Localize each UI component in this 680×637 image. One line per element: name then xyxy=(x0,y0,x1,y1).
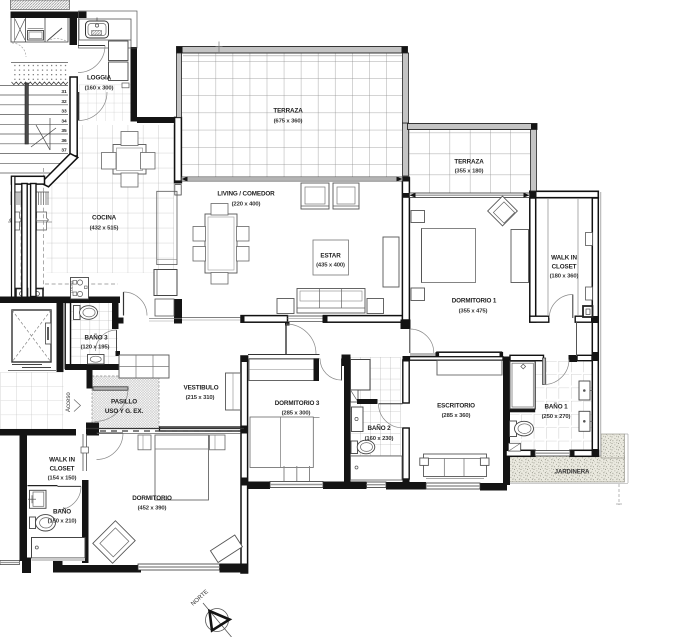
svg-text:DORMITORIO: DORMITORIO xyxy=(132,495,172,502)
svg-text:36: 36 xyxy=(61,138,67,144)
svg-text:(285 x 360): (285 x 360) xyxy=(442,413,471,419)
svg-text:PASILLO: PASILLO xyxy=(111,399,137,406)
svg-text:(435 x 400): (435 x 400) xyxy=(316,263,345,269)
svg-text:33: 33 xyxy=(61,109,67,115)
svg-text:WALK IN: WALK IN xyxy=(551,255,577,262)
svg-text:(675 x 360): (675 x 360) xyxy=(274,119,303,125)
svg-text:32: 32 xyxy=(61,99,67,105)
svg-text:(180 x 360): (180 x 360) xyxy=(550,274,579,280)
svg-text:DORMITORIO 3: DORMITORIO 3 xyxy=(275,400,320,407)
svg-text:CLOSET: CLOSET xyxy=(552,264,577,271)
svg-text:(160 x 300): (160 x 300) xyxy=(85,86,114,92)
svg-text:(452 x 390): (452 x 390) xyxy=(138,506,167,512)
svg-text:31: 31 xyxy=(61,89,67,95)
svg-text:35: 35 xyxy=(61,128,67,134)
svg-text:BAÑO 1: BAÑO 1 xyxy=(544,402,568,411)
svg-text:LIVING / COMEDOR: LIVING / COMEDOR xyxy=(217,191,275,198)
svg-text:(150 x 210): (150 x 210) xyxy=(48,519,77,525)
svg-text:37: 37 xyxy=(61,148,67,154)
svg-text:CLOSET: CLOSET xyxy=(50,466,75,473)
svg-text:(220 x 400): (220 x 400) xyxy=(232,202,261,208)
svg-text:TERRAZA: TERRAZA xyxy=(273,108,303,115)
svg-text:WALK IN: WALK IN xyxy=(49,457,75,464)
svg-text:(120 x 195): (120 x 195) xyxy=(81,345,110,351)
svg-text:JARDINERA: JARDINERA xyxy=(555,469,590,476)
svg-text:TERRAZA: TERRAZA xyxy=(454,159,484,166)
svg-text:(432 x 515): (432 x 515) xyxy=(90,226,119,232)
svg-text:LOGGIA: LOGGIA xyxy=(87,75,112,82)
svg-text:ESCRITORIO: ESCRITORIO xyxy=(437,403,475,410)
svg-text:(250 x 270): (250 x 270) xyxy=(542,414,571,420)
svg-text:(285 x 300): (285 x 300) xyxy=(282,411,311,417)
svg-text:BAÑO 3: BAÑO 3 xyxy=(84,333,108,342)
svg-text:COCINA: COCINA xyxy=(92,215,117,222)
svg-text:BAÑO 2: BAÑO 2 xyxy=(367,423,391,432)
svg-text:34: 34 xyxy=(61,118,67,124)
svg-text:(355 x 180): (355 x 180) xyxy=(455,169,484,175)
svg-text:(355 x 475): (355 x 475) xyxy=(459,309,488,315)
svg-text:(160 x 230): (160 x 230) xyxy=(365,436,394,442)
svg-text:USO Y G. EX.: USO Y G. EX. xyxy=(105,408,144,415)
svg-text:BAÑO: BAÑO xyxy=(53,507,71,516)
svg-text:(215 x 310): (215 x 310) xyxy=(186,395,215,401)
svg-text:VESTIBULO: VESTIBULO xyxy=(184,385,219,392)
svg-text:COCINA: COCINA xyxy=(70,280,74,293)
svg-text:Acceso: Acceso xyxy=(66,392,72,412)
svg-text:DORMITORIO 1: DORMITORIO 1 xyxy=(452,298,497,305)
svg-text:(154 x 150): (154 x 150) xyxy=(48,476,77,482)
svg-text:ESTAR: ESTAR xyxy=(320,253,341,260)
